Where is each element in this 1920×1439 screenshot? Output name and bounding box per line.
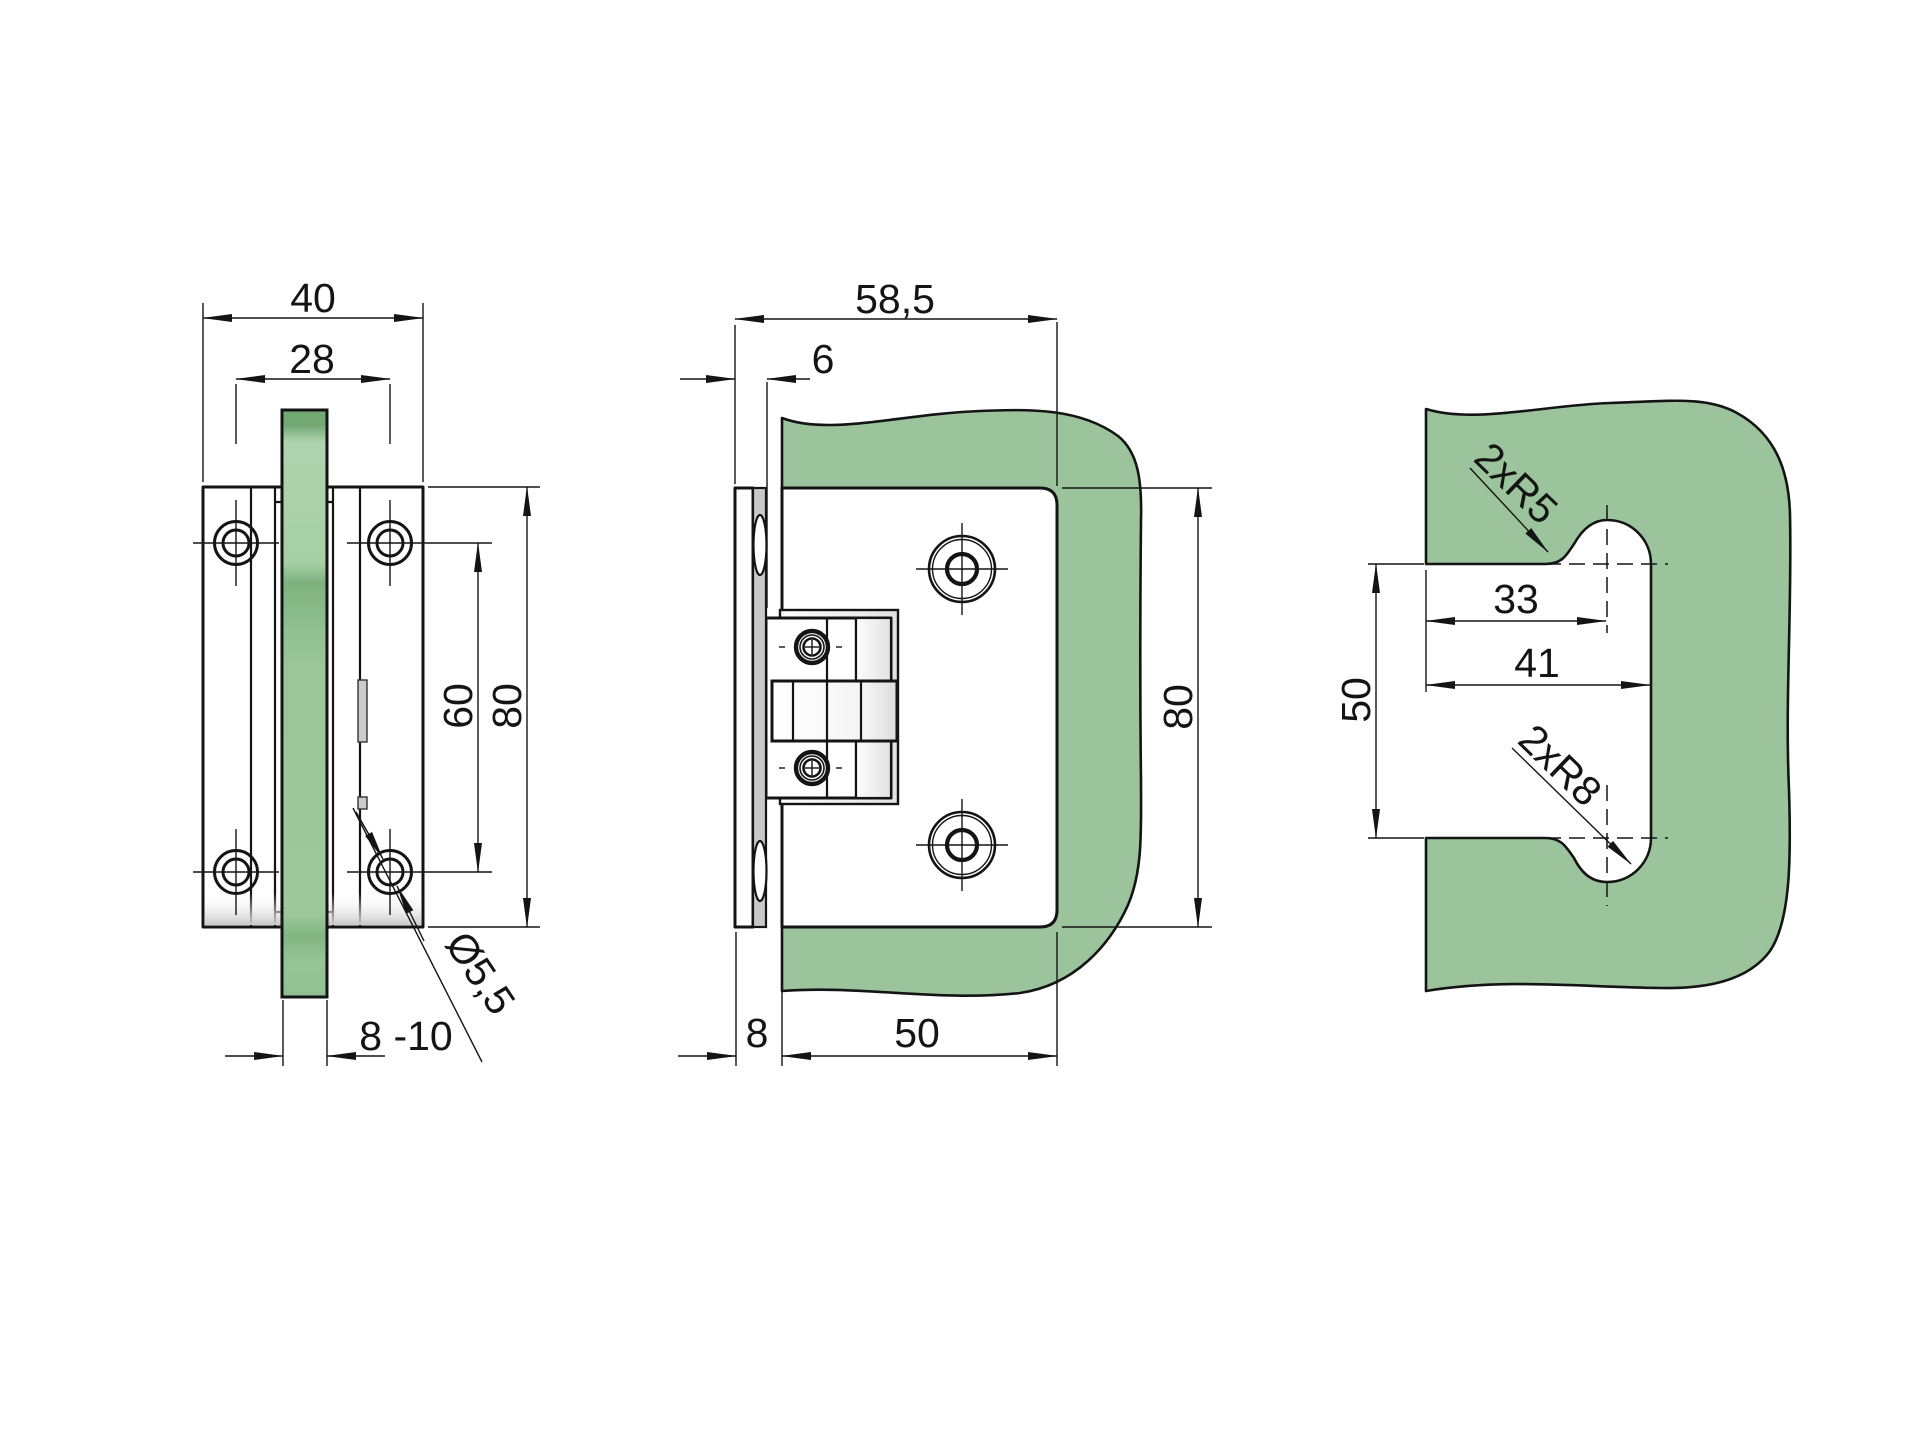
dim-label: 8 -10 [359, 1013, 452, 1059]
dim-side-leaf-depth: 50 [782, 1010, 1057, 1056]
hinge-pin-detail [358, 797, 367, 809]
slot-hole [754, 515, 767, 575]
dim-cutout-height: 50 [1333, 564, 1379, 838]
dim-cutout-width: 41 [1426, 640, 1650, 686]
drawing-page: 40 28 60 80 8 -10 [0, 0, 1920, 1439]
dim-label: 50 [1333, 677, 1379, 723]
dim-label: 41 [1514, 640, 1560, 686]
hinge-pin-detail [358, 680, 367, 742]
dim-front-hole-pitch: 60 [435, 543, 481, 872]
dim-label: 33 [1493, 576, 1539, 622]
front-view: 40 28 60 80 8 -10 [193, 275, 540, 1066]
glass-cutout-view: 50 33 41 2xR5 2xR8 [1333, 401, 1790, 991]
dim-label: 60 [435, 683, 481, 729]
dim-label: 80 [1155, 684, 1201, 730]
dim-glass-thickness: 8 -10 [225, 1000, 453, 1066]
dim-label: 50 [894, 1010, 940, 1056]
side-view: 58,5 6 80 8 50 [678, 276, 1212, 1066]
dim-label: 28 [289, 336, 335, 382]
pivot-barrel [772, 681, 897, 741]
dim-label: 6 [812, 336, 835, 382]
dim-label: 8 [746, 1010, 769, 1056]
technical-drawing: 40 28 60 80 8 -10 [0, 0, 1920, 1439]
dim-label: 40 [290, 275, 336, 321]
glass-with-cutout [1426, 401, 1790, 991]
dim-label: Ø5,5 [437, 923, 525, 1022]
wall-plate [735, 488, 753, 927]
dim-label: 58,5 [855, 276, 935, 322]
slot-hole [754, 841, 767, 901]
glass-strip [282, 410, 327, 997]
dim-label: 80 [484, 683, 530, 729]
dim-cutout-center-offset: 33 [1426, 576, 1606, 622]
dim-label: 2xR8 [1510, 715, 1611, 815]
